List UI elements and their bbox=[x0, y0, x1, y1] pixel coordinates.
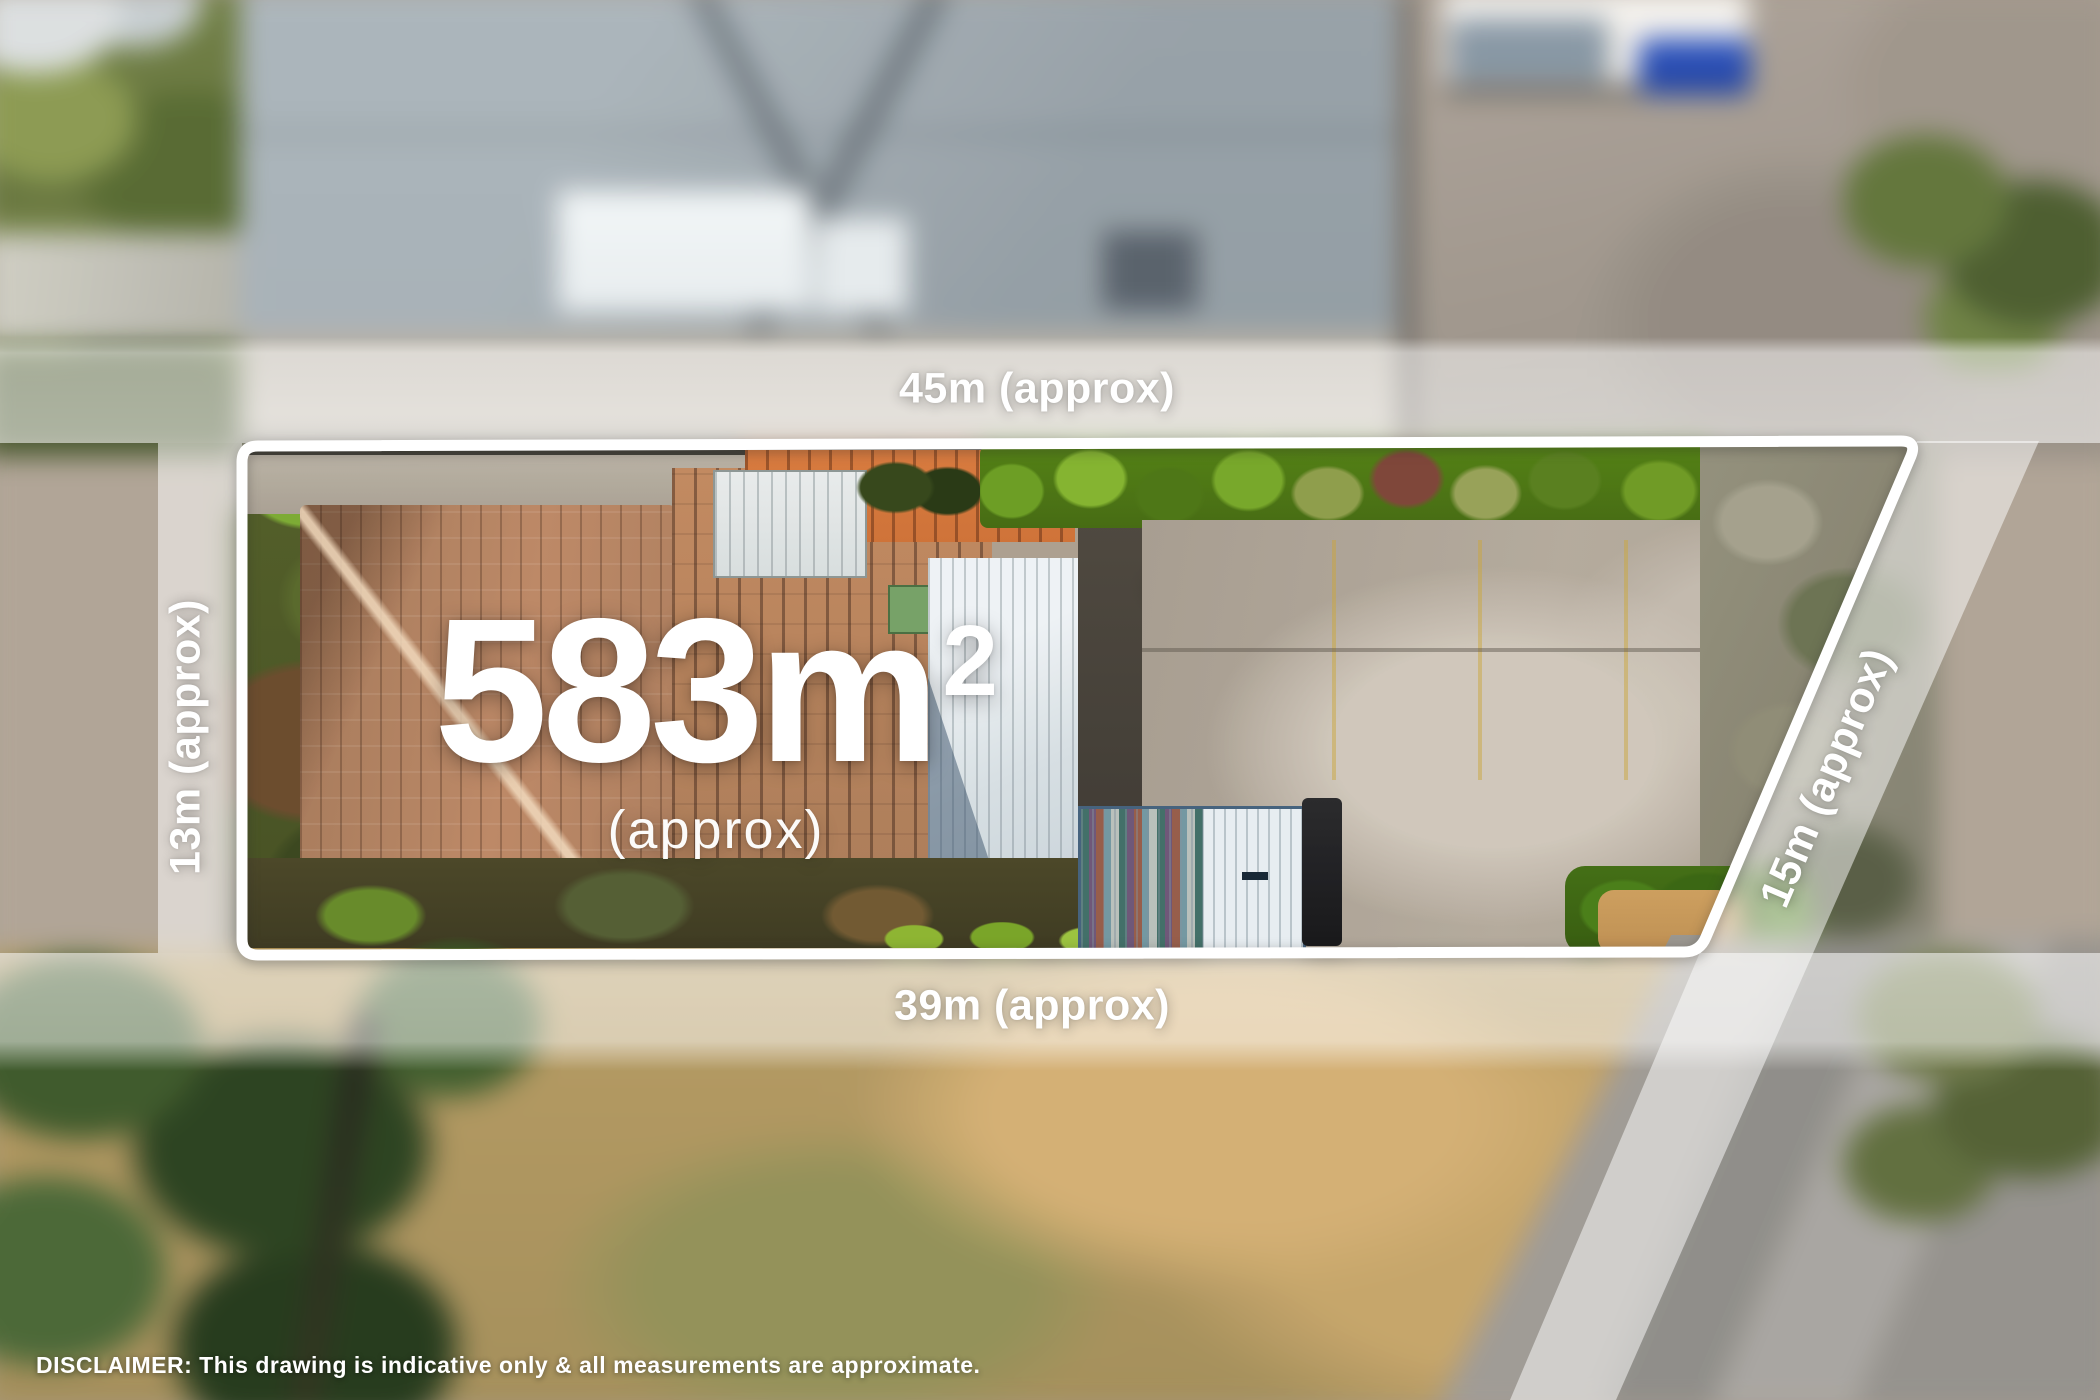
dimension-label-bottom: 39m (approx) bbox=[894, 982, 1170, 1031]
area-superscript: 2 bbox=[942, 605, 998, 717]
disclaimer-text: DISCLAIMER: This drawing is indicative o… bbox=[36, 1352, 980, 1379]
boundary-overlay bbox=[0, 0, 2100, 1400]
area-label: 583m2 (approx) bbox=[434, 588, 998, 861]
area-value: 583m bbox=[434, 576, 934, 805]
dimension-label-top: 45m (approx) bbox=[899, 365, 1175, 414]
property-aerial-diagram: 45m (approx) 13m (approx) 15m (approx) 3… bbox=[0, 0, 2100, 1400]
area-value-line: 583m2 bbox=[434, 588, 998, 793]
area-qualifier: (approx) bbox=[434, 799, 998, 861]
dimension-label-left: 13m (approx) bbox=[162, 599, 211, 875]
